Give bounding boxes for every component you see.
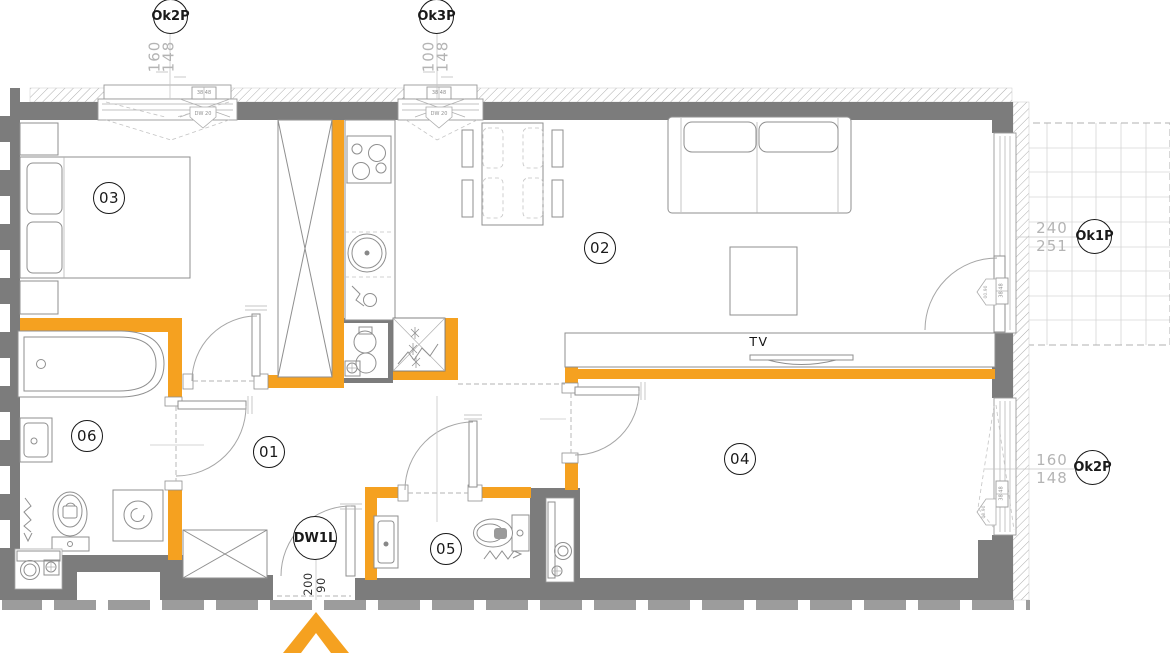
sill-annotation: 38 48 bbox=[998, 481, 1007, 507]
door-room-04 bbox=[562, 382, 645, 463]
coffee-table bbox=[730, 247, 797, 315]
shaft-fixtures bbox=[546, 498, 574, 582]
windows bbox=[98, 72, 1016, 535]
door-bedroom-03 bbox=[183, 306, 268, 389]
utility-meters bbox=[344, 323, 388, 378]
room-number: 03 bbox=[99, 191, 119, 206]
entrance-door-tag: DW1L bbox=[293, 516, 337, 560]
washing-machine bbox=[113, 490, 163, 541]
chair bbox=[462, 180, 473, 217]
window-tag-right-bottom: Ok2P bbox=[1075, 450, 1110, 485]
chair bbox=[462, 130, 473, 167]
chair bbox=[552, 130, 563, 167]
floor-plan-drawing bbox=[0, 0, 1170, 653]
room-label-04: 04 bbox=[724, 443, 756, 475]
room-number: 04 bbox=[730, 452, 750, 467]
entrance-door-text: DW1L bbox=[294, 532, 336, 545]
dining-set bbox=[462, 123, 563, 225]
level-annotation: 00.90 bbox=[981, 502, 989, 522]
hall-wardrobe bbox=[183, 530, 267, 578]
sill-annotation: 38 48 bbox=[427, 88, 451, 98]
window-dim: 240 bbox=[1031, 220, 1073, 236]
room-label-06: 06 bbox=[71, 420, 103, 452]
window-dim: 148 bbox=[437, 33, 450, 81]
door-bathroom-06 bbox=[165, 396, 252, 490]
window-tag-right: Ok1P bbox=[1077, 219, 1112, 254]
window-tag-text: Ok3P bbox=[417, 10, 455, 23]
room-number: 01 bbox=[259, 445, 279, 460]
window-dim: 148 bbox=[163, 33, 176, 81]
nightstand bbox=[20, 281, 58, 314]
floor-plan: 01 02 03 04 05 06 Ok2P Ok3P Ok1P Ok2P 16… bbox=[0, 0, 1170, 653]
sofa bbox=[668, 117, 851, 213]
room-label-02: 02 bbox=[584, 232, 616, 264]
toilet bbox=[474, 515, 530, 551]
toilet bbox=[52, 492, 89, 551]
double-bed bbox=[20, 157, 190, 278]
room-number: 02 bbox=[590, 241, 610, 256]
bathroom-06-fixtures bbox=[15, 331, 164, 589]
room-label-03: 03 bbox=[93, 182, 125, 214]
sill-annotation: 38 48 bbox=[192, 88, 216, 98]
tv-shelf bbox=[565, 333, 995, 367]
window-tag-text: Ok1P bbox=[1075, 230, 1113, 243]
tv-label: TV bbox=[744, 335, 774, 350]
slope-arrow bbox=[484, 551, 521, 559]
drain-arrow bbox=[24, 498, 32, 541]
chair bbox=[552, 180, 563, 217]
tv-wall bbox=[565, 369, 995, 379]
nightstand bbox=[20, 123, 58, 155]
window-top-left bbox=[98, 72, 237, 140]
entrance-door-dim: 200 bbox=[303, 567, 315, 601]
vent-shaft bbox=[393, 318, 445, 371]
window-marker-annotation: DW 20 bbox=[190, 109, 216, 119]
niche-fixtures bbox=[15, 549, 62, 589]
window-tag-top-left: Ok2P bbox=[153, 0, 188, 34]
window-tag-text: Ok2P bbox=[151, 10, 189, 23]
kitchen-counter bbox=[344, 120, 445, 378]
window-dim: 148 bbox=[1031, 470, 1073, 486]
window-dim: 251 bbox=[1031, 238, 1073, 254]
door-wc-05 bbox=[398, 415, 482, 501]
room-label-01: 01 bbox=[253, 436, 285, 468]
room-label-05: 05 bbox=[430, 533, 462, 565]
entrance-arrow bbox=[283, 612, 349, 653]
level-annotation: 00.90 bbox=[983, 282, 991, 302]
left-wall-notches bbox=[0, 88, 10, 560]
dining-table bbox=[482, 123, 543, 225]
room-number: 06 bbox=[77, 429, 97, 444]
window-tag-top-center: Ok3P bbox=[419, 0, 454, 34]
entrance-door-dim: 90 bbox=[316, 568, 328, 602]
window-tag-text: Ok2P bbox=[1073, 461, 1111, 474]
window-dim: 160 bbox=[1031, 452, 1073, 468]
sill-annotation: 38 48 bbox=[998, 278, 1007, 304]
room-number: 05 bbox=[436, 542, 456, 557]
window-marker-annotation: DW 20 bbox=[426, 109, 452, 119]
